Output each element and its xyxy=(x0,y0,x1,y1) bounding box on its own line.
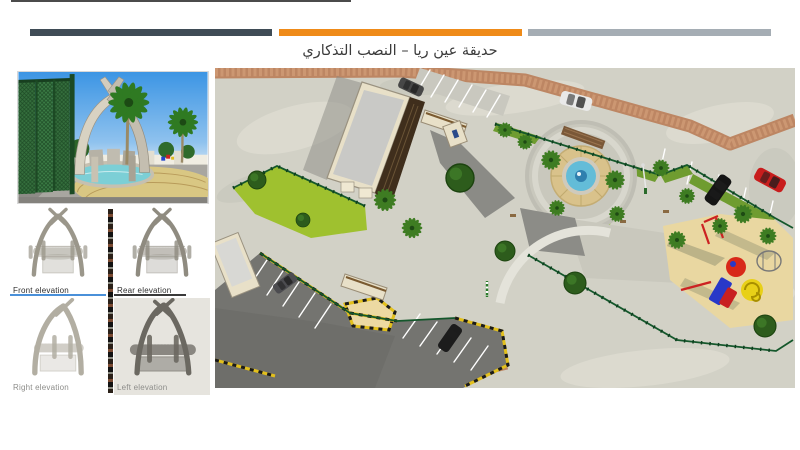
site-plan-illustration xyxy=(215,68,795,388)
left-elevation-drawing xyxy=(116,298,208,380)
header-bar-dark xyxy=(30,29,272,36)
site-fence xyxy=(18,74,74,196)
slide-title: حديقة عين ريا – النصب التذكاري xyxy=(150,43,650,59)
left-elevation-cell: Left elevation xyxy=(114,298,210,395)
memorial-render-illustration xyxy=(18,72,208,203)
right-elevation-drawing xyxy=(12,298,104,380)
front-elevation-cell: Front elevation xyxy=(10,207,106,296)
right-elevation-cell: Right elevation xyxy=(10,298,106,395)
elevation-divider-strip xyxy=(108,209,113,393)
right-elevation-label: Right elevation xyxy=(13,383,69,392)
rear-elevation-cell: Rear elevation xyxy=(114,207,210,296)
presentation-slide: حديقة عين ريا – النصب التذكاري xyxy=(0,0,800,450)
rear-elevation-drawing xyxy=(116,207,208,281)
front-elevation-drawing xyxy=(12,207,104,281)
elevation-drawings-panel: Front elevation Rear elevation xyxy=(10,207,210,395)
park-site-plan-render xyxy=(215,68,795,388)
memorial-perspective-render xyxy=(17,71,209,204)
header-bar-orange xyxy=(279,29,522,36)
front-elevation-rule xyxy=(10,294,106,296)
header-bar-gray xyxy=(528,29,771,36)
rear-elevation-rule xyxy=(114,294,186,296)
top-edge-line xyxy=(11,0,351,2)
left-elevation-label: Left elevation xyxy=(117,383,167,392)
